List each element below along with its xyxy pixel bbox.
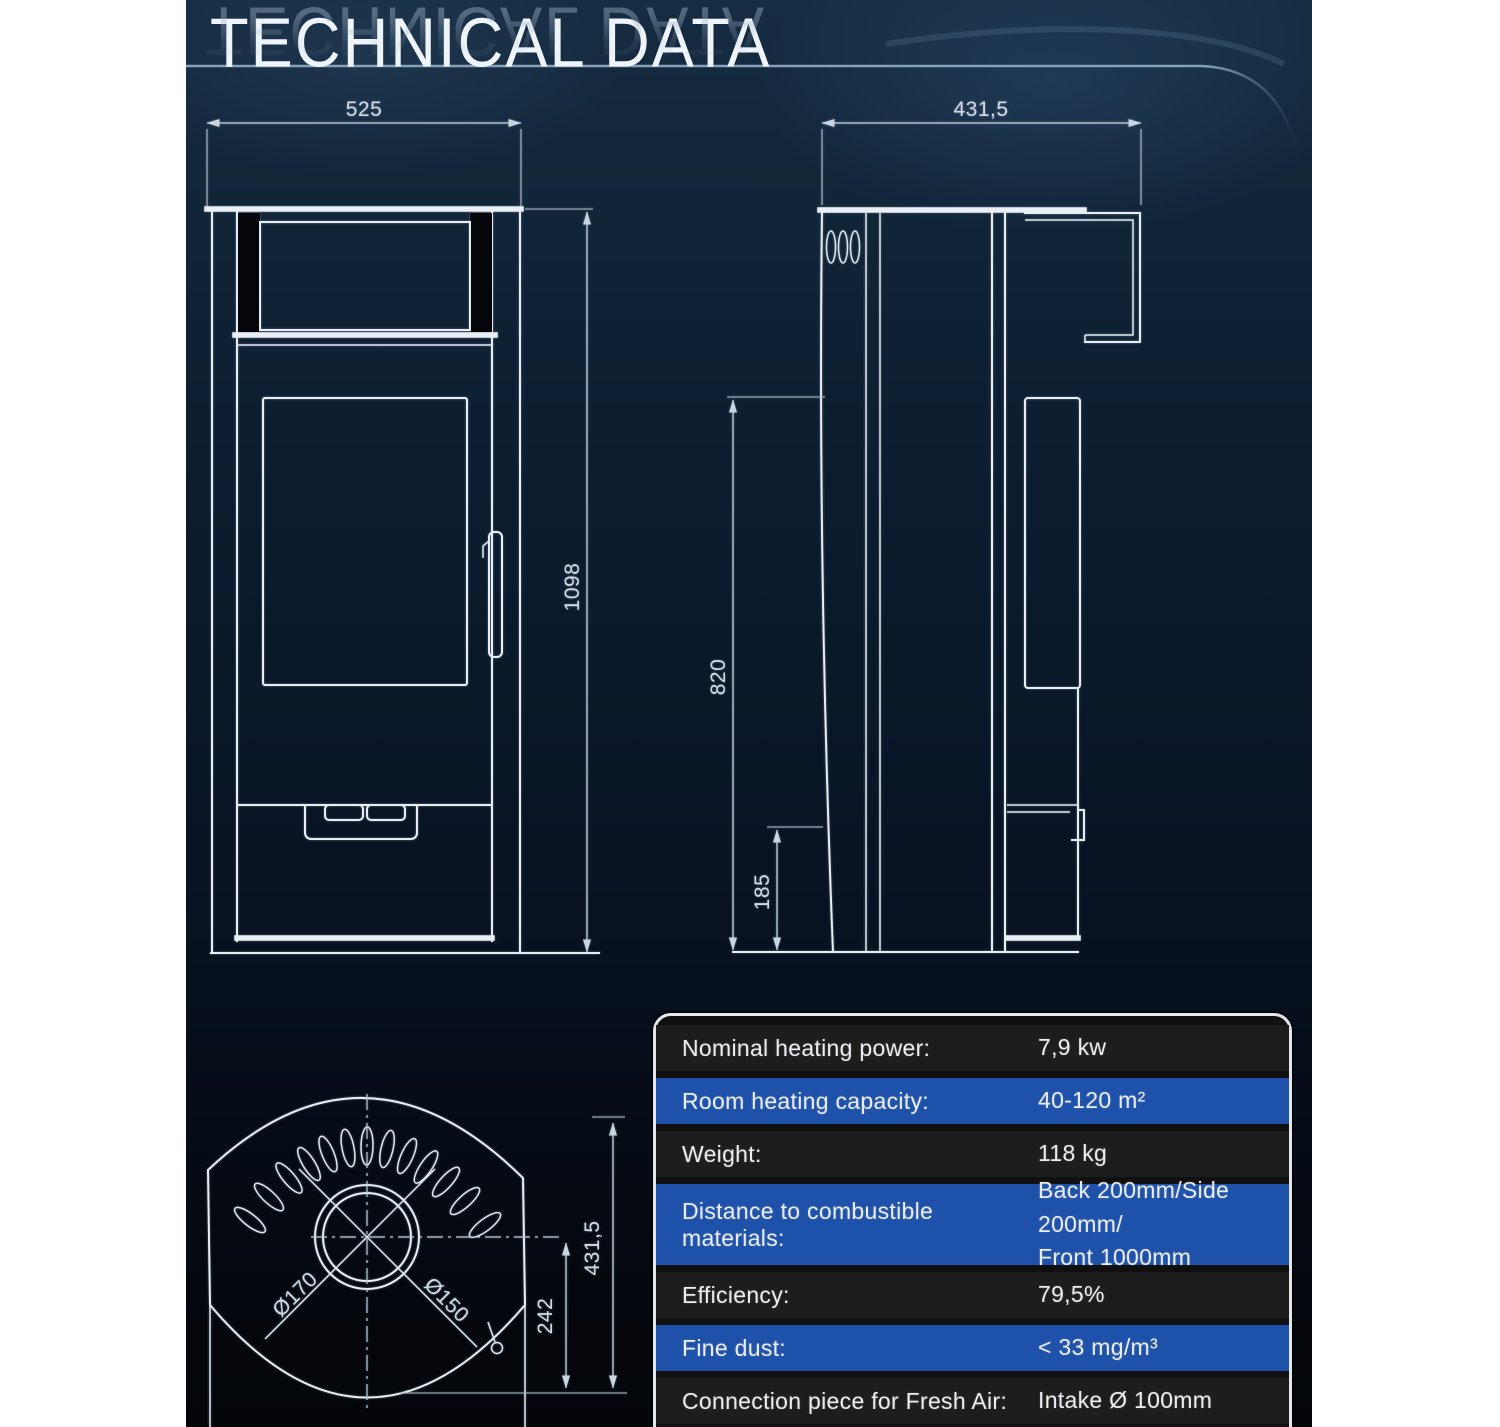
datasheet-panel: TECHNICAL DATA TECHNICAL DATA 525 [186, 0, 1312, 1427]
ash-drawer-recess [305, 807, 417, 839]
flue-inner-diameter-label: Ø150 [419, 1273, 473, 1327]
spec-label: Distance to combustible materials: [656, 1198, 1012, 1252]
top-offset-dimension: 242 [534, 1298, 557, 1335]
damper-knob [492, 1343, 503, 1354]
spec-value: 79,5% [1012, 1278, 1289, 1311]
spec-label: Nominal heating power: [656, 1035, 1012, 1062]
stove-front-edge [821, 213, 833, 952]
page-title-reflection: TECHNICAL DATA [204, 0, 765, 70]
spec-value: 40-120 m² [1012, 1084, 1289, 1117]
flue-outer-diameter-label: Ø170 [268, 1268, 322, 1322]
spec-value: 7,9 kw [1012, 1031, 1289, 1064]
spec-row-fresh-air-connection: Connection piece for Fresh Air: Intake Ø… [656, 1378, 1289, 1424]
spec-value: Intake Ø 100mm [1012, 1384, 1289, 1417]
front-height-dimension: 1098 [561, 563, 584, 612]
spec-row-nominal-heating-power: Nominal heating power: 7,9 kw [656, 1025, 1289, 1071]
rear-heat-shield [1025, 398, 1080, 688]
spec-row-distance-to-combustibles: Distance to combustible materials: Back … [656, 1184, 1289, 1265]
spec-value: < 33 mg/m³ [1012, 1331, 1289, 1364]
spec-label: Connection piece for Fresh Air: [656, 1388, 1012, 1415]
spec-row-efficiency: Efficiency: 79,5% [656, 1272, 1289, 1318]
side-depth-dimension: 431,5 [953, 98, 1008, 121]
spec-table: Nominal heating power: 7,9 kw Room heati… [653, 1013, 1292, 1427]
spec-value-line2: Front 1000mm [1038, 1241, 1289, 1274]
spec-label: Weight: [656, 1141, 1012, 1168]
spec-value: 118 kg [1012, 1137, 1289, 1170]
side-view-drawing: 431,5 820 185 [700, 95, 1170, 965]
spec-row-room-heating-capacity: Room heating capacity: 40-120 m² [656, 1078, 1289, 1124]
front-view-drawing: 525 1098 [195, 95, 615, 965]
side-height-dimension: 820 [707, 659, 730, 696]
side-vent-slots [827, 231, 860, 263]
spec-value: Back 200mm/Side 200mm/ Front 1000mm [1012, 1174, 1289, 1274]
top-depth-dimension: 431,5 [581, 1220, 604, 1275]
spec-row-fine-dust: Fine dust: < 33 mg/m³ [656, 1325, 1289, 1371]
front-width-dimension: 525 [346, 98, 383, 121]
spec-label: Efficiency: [656, 1282, 1012, 1309]
spec-value-line1: Back 200mm/Side 200mm/ [1038, 1174, 1289, 1241]
spec-label: Room heating capacity: [656, 1088, 1012, 1115]
spec-row-weight: Weight: 118 kg [656, 1131, 1289, 1177]
top-view-drawing: Ø170 Ø150 242 431,5 [195, 1090, 635, 1427]
stove-door-glass [263, 398, 467, 685]
door-handle [489, 532, 502, 657]
technical-datasheet-page: { "title": "TECHNICAL DATA", "colors": {… [0, 0, 1500, 1427]
side-clearance-dimension: 185 [751, 874, 774, 911]
spec-label: Fine dust: [656, 1335, 1012, 1362]
